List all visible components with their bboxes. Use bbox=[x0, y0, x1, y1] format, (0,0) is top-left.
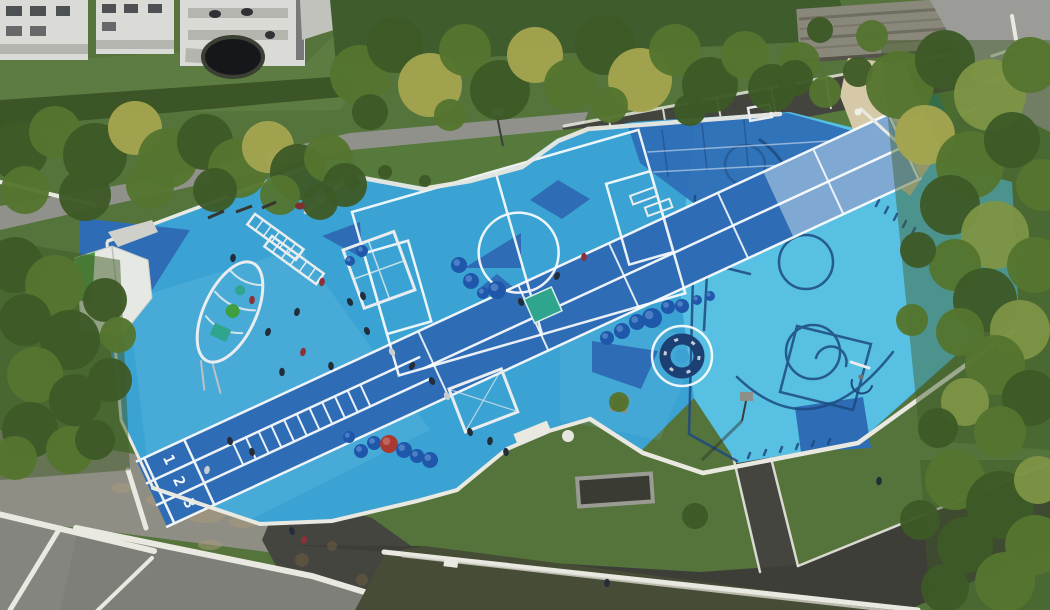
tree bbox=[260, 175, 300, 215]
person bbox=[279, 368, 285, 376]
tree bbox=[896, 304, 928, 336]
aerial-photo: 1 2 3 bbox=[0, 0, 1050, 610]
tree bbox=[921, 564, 969, 610]
tree bbox=[592, 87, 628, 123]
tree bbox=[88, 358, 132, 402]
tree bbox=[126, 161, 174, 209]
tree bbox=[900, 232, 936, 268]
tree bbox=[900, 500, 940, 540]
tree bbox=[75, 420, 115, 460]
aerial-scene: 1 2 3 bbox=[0, 0, 1050, 610]
tree bbox=[419, 175, 431, 187]
white-ball bbox=[562, 430, 574, 442]
tree bbox=[1, 166, 49, 214]
tree bbox=[344, 174, 360, 190]
garden-pit bbox=[577, 473, 653, 506]
tree bbox=[975, 552, 1035, 610]
tree bbox=[918, 408, 958, 448]
tree bbox=[378, 165, 392, 179]
tree bbox=[352, 94, 388, 130]
tree bbox=[83, 278, 127, 322]
tree bbox=[609, 392, 629, 412]
tree bbox=[974, 406, 1026, 458]
tree bbox=[100, 317, 136, 353]
tree bbox=[777, 60, 813, 96]
tree bbox=[434, 99, 466, 131]
lamp-post bbox=[740, 392, 753, 401]
tree bbox=[193, 168, 237, 212]
tree bbox=[302, 184, 338, 220]
tree bbox=[809, 76, 841, 108]
tree bbox=[674, 94, 706, 126]
tree bbox=[856, 20, 888, 52]
tree bbox=[682, 503, 708, 529]
carousel bbox=[652, 326, 712, 386]
tree bbox=[984, 112, 1040, 168]
small-ball bbox=[855, 109, 862, 116]
tree bbox=[59, 169, 111, 221]
tree bbox=[807, 17, 833, 43]
